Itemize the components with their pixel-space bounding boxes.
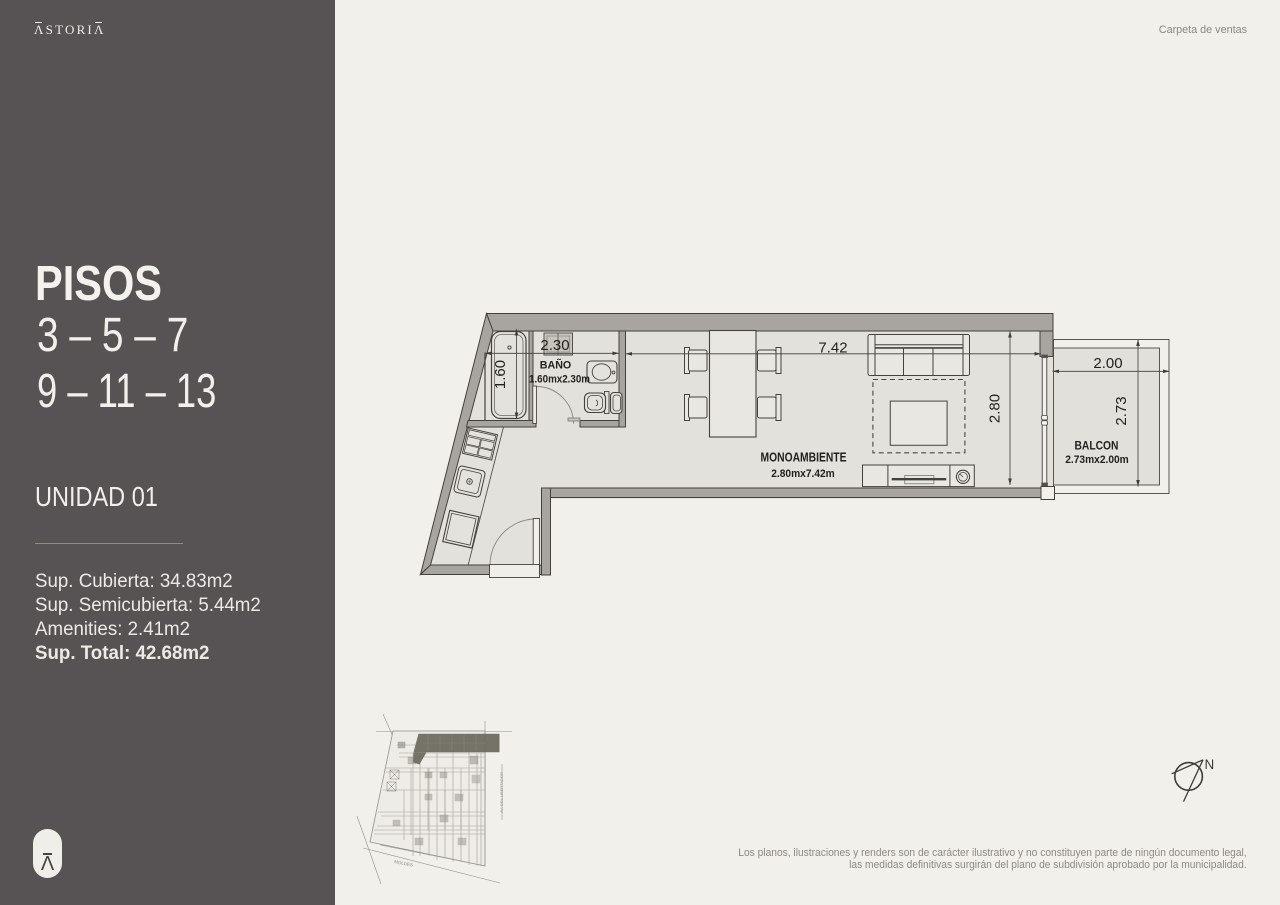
- svg-text:BALCON: BALCON: [1075, 440, 1119, 452]
- svg-text:AV. DEL LIBERTADOR: AV. DEL LIBERTADOR: [499, 772, 504, 813]
- svg-text:MONOAMBIENTE: MONOAMBIENTE: [761, 451, 847, 465]
- svg-text:2.73mx2.00m: 2.73mx2.00m: [1065, 454, 1129, 466]
- svg-text:N: N: [1205, 757, 1215, 772]
- svg-text:1.60: 1.60: [492, 360, 509, 389]
- svg-text:2.80: 2.80: [987, 394, 1004, 423]
- svg-text:2.80mx7.42m: 2.80mx7.42m: [771, 468, 835, 480]
- svg-text:1.60mx2.30m: 1.60mx2.30m: [529, 374, 590, 386]
- svg-text:2.30: 2.30: [540, 337, 569, 354]
- svg-text:2.00: 2.00: [1093, 355, 1122, 372]
- svg-text:7.42: 7.42: [818, 339, 847, 356]
- svg-text:BAÑO: BAÑO: [540, 358, 572, 371]
- svg-text:2.73: 2.73: [1113, 396, 1130, 425]
